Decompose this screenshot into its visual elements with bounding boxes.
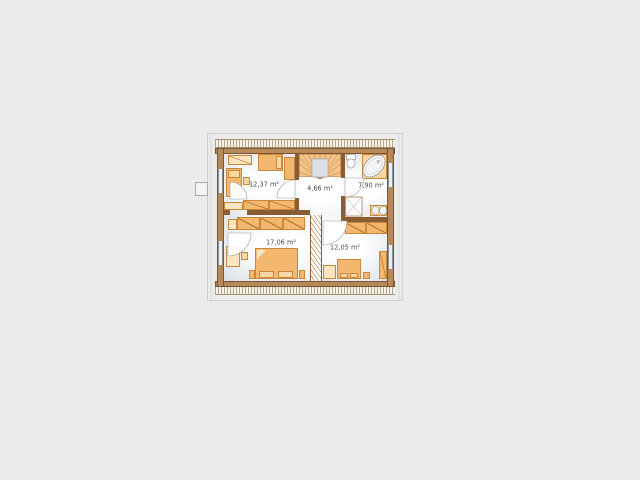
bathtub-icon [359,151,389,181]
shower-icon [346,197,363,216]
room-area-label: 4,66 m² [307,186,333,193]
room-area-label: 12,05 m² [330,245,360,252]
room-area-label: 17,06 m² [266,240,296,247]
room-area-label: 12,37 m² [249,182,279,189]
sink-icon [372,207,387,215]
fixtures-overlay [207,133,403,301]
door-swing [230,182,247,199]
door-swing [323,221,347,245]
door-swing [277,180,295,198]
floor-plan: 12,37 m² 4,66 m² 7,90 m² 17,06 m² 12,05 … [207,133,403,301]
door-swing [228,233,251,256]
room-area-label: 7,90 m² [358,183,384,190]
toilet-icon [347,155,356,169]
